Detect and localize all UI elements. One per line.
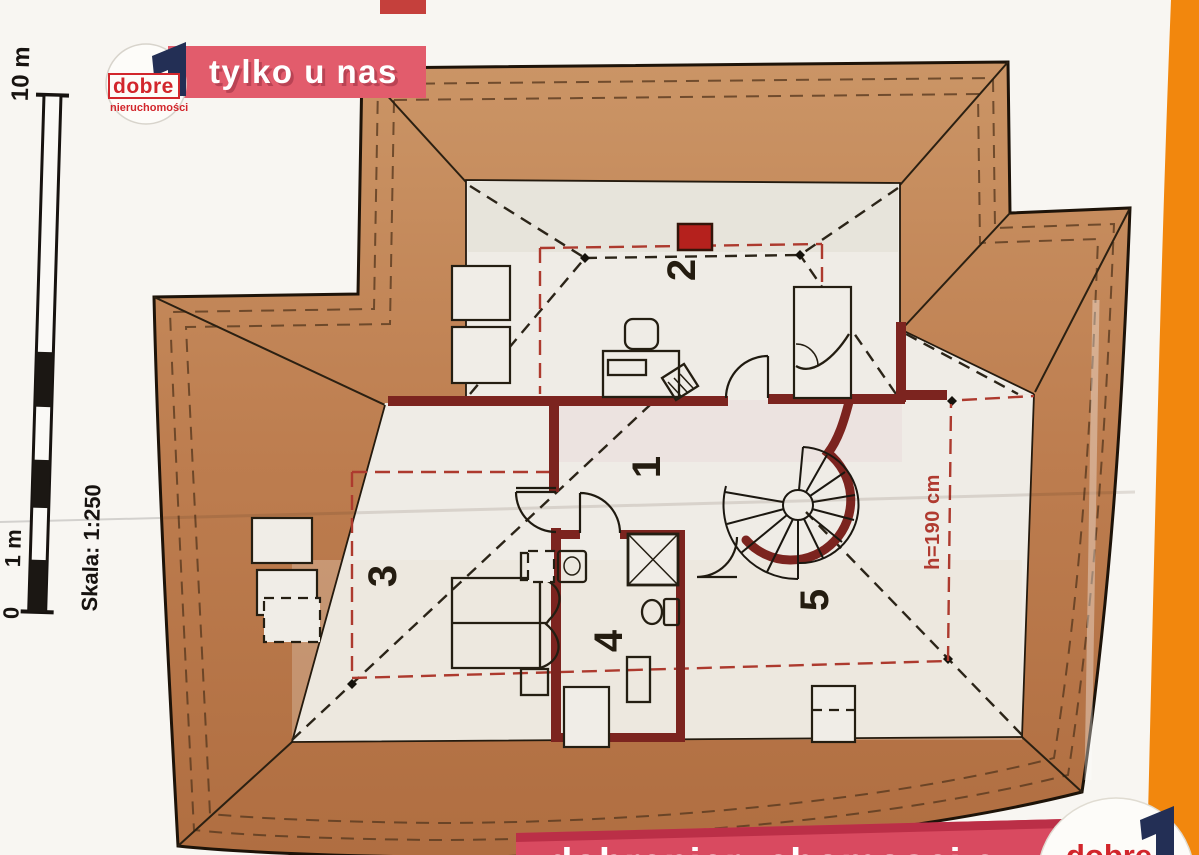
eave-window <box>252 518 312 563</box>
wardrobe <box>794 287 851 398</box>
room-label-1: 1 <box>625 456 669 478</box>
footer-watermark: dobrenieruchomosci.eu <box>548 841 1022 855</box>
floor-plan-drawing: h=190 cm <box>0 0 1199 855</box>
scanned-flyer-page: h=190 cm <box>0 0 1199 855</box>
eave-window-dashed <box>264 598 320 642</box>
ceiling-height-annotation: h=190 cm <box>922 474 944 570</box>
room-label-5: 5 <box>793 589 837 611</box>
shower <box>628 534 678 585</box>
room-label-3: 3 <box>361 565 405 587</box>
logo-subtitle: nieruchomości <box>110 102 188 114</box>
scale-zero-label: 0 <box>0 606 24 619</box>
scale-ratio-label: Skala: 1:250 <box>77 484 106 612</box>
eave-window <box>564 687 609 747</box>
skylight-window <box>452 266 510 320</box>
room5-furniture <box>812 686 855 742</box>
room-label-4: 4 <box>587 629 631 652</box>
promo-banner-text: tylko u nas <box>209 53 398 90</box>
scale-one-meter-label: 1 m <box>0 529 26 568</box>
footer-logo-name: dobre <box>1066 838 1152 855</box>
nightstand <box>812 686 855 742</box>
top-red-mark <box>380 0 426 14</box>
header-logo: dobre nieruchomości <box>106 42 188 124</box>
chimney-marker <box>678 224 712 250</box>
room-label-2: 2 <box>660 259 704 281</box>
scale-ten-meter-label: 10 m <box>7 46 36 101</box>
skylight-window <box>452 327 510 383</box>
logo-name: dobre <box>113 75 174 98</box>
